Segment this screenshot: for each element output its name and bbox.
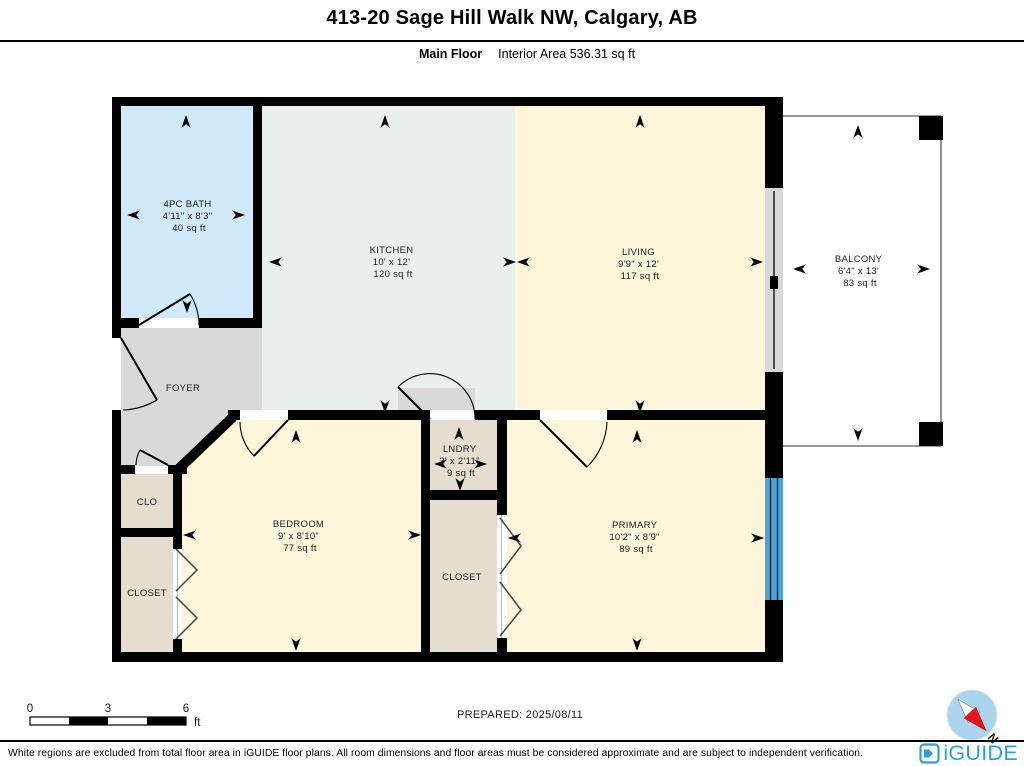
room-name: BALCONY bbox=[835, 254, 883, 265]
scale-unit: ft bbox=[194, 717, 201, 729]
room-area: 120 sq ft bbox=[373, 269, 412, 280]
iguide-logo: iGUIDE bbox=[919, 741, 1018, 766]
room-name: KITCHEN bbox=[370, 245, 414, 256]
room-closet-middle-label: CLOSET bbox=[442, 572, 482, 583]
room-area: 89 sq ft bbox=[619, 544, 653, 555]
disclaimer-text: White regions are excluded from total fl… bbox=[8, 748, 863, 759]
footer-divider bbox=[0, 740, 1024, 742]
room-dims: 6'4" x 13' bbox=[838, 266, 879, 277]
floor-subtitle: Main FloorInterior Area 536.31 sq ft bbox=[0, 47, 1024, 61]
room-area: 9 sq ft bbox=[447, 468, 475, 479]
floorplan-drawing: 4PC BATH 4'11" x 8'3" 40 sq ft KITCHEN 1… bbox=[0, 88, 1024, 766]
scale-label-0: 0 bbox=[27, 703, 33, 715]
room-dims: 10'2" x 8'9" bbox=[609, 532, 659, 543]
page-title: 413-20 Sage Hill Walk NW, Calgary, AB bbox=[0, 7, 1024, 30]
room-living-label: LIVING 9'9" x 12' 117 sq ft bbox=[618, 247, 662, 282]
room-name: LNDRY bbox=[443, 444, 477, 455]
compass-icon: N bbox=[947, 690, 1002, 747]
room-name: PRIMARY bbox=[612, 520, 658, 531]
room-dims: 4'11" x 8'3" bbox=[163, 211, 213, 222]
room-area: 40 sq ft bbox=[172, 223, 206, 234]
room-name: BEDROOM bbox=[273, 519, 324, 530]
room-name: LIVING bbox=[622, 247, 655, 258]
room-dims: 3' x 2'11" bbox=[439, 456, 479, 467]
room-areas bbox=[121, 106, 941, 652]
iguide-logo-icon bbox=[919, 743, 940, 764]
room-dims: 9'9" x 12' bbox=[618, 259, 659, 270]
room-area: 83 sq ft bbox=[843, 278, 877, 289]
interior-area-label: Interior Area 536.31 sq ft bbox=[498, 47, 635, 61]
room-kitchen-label: KITCHEN 10' x 12' 120 sq ft bbox=[370, 245, 417, 280]
scale-label-6: 6 bbox=[183, 703, 189, 715]
room-area: 117 sq ft bbox=[621, 271, 659, 282]
scale-label-3: 3 bbox=[105, 703, 111, 715]
room-name: 4PC BATH bbox=[163, 199, 211, 210]
room-dims: 10' x 12' bbox=[373, 257, 411, 268]
room-area: 77 sq ft bbox=[283, 543, 317, 554]
room-closet-left-label: CLOSET bbox=[127, 588, 167, 599]
scale-bar: 0 3 6 ft bbox=[27, 703, 201, 729]
room-dims: 9' x 8'10" bbox=[278, 531, 319, 542]
prepared-date: PREPARED: 2025/08/11 bbox=[457, 709, 583, 721]
iguide-logo-text: iGUIDE bbox=[943, 741, 1018, 766]
room-clo-label: CLO bbox=[137, 497, 157, 508]
window bbox=[765, 478, 783, 600]
sliding-door bbox=[765, 188, 783, 372]
title-divider bbox=[0, 40, 1024, 42]
floor-label: Main Floor bbox=[419, 47, 482, 61]
room-living bbox=[515, 106, 765, 410]
room-foyer-label: FOYER bbox=[166, 383, 200, 394]
